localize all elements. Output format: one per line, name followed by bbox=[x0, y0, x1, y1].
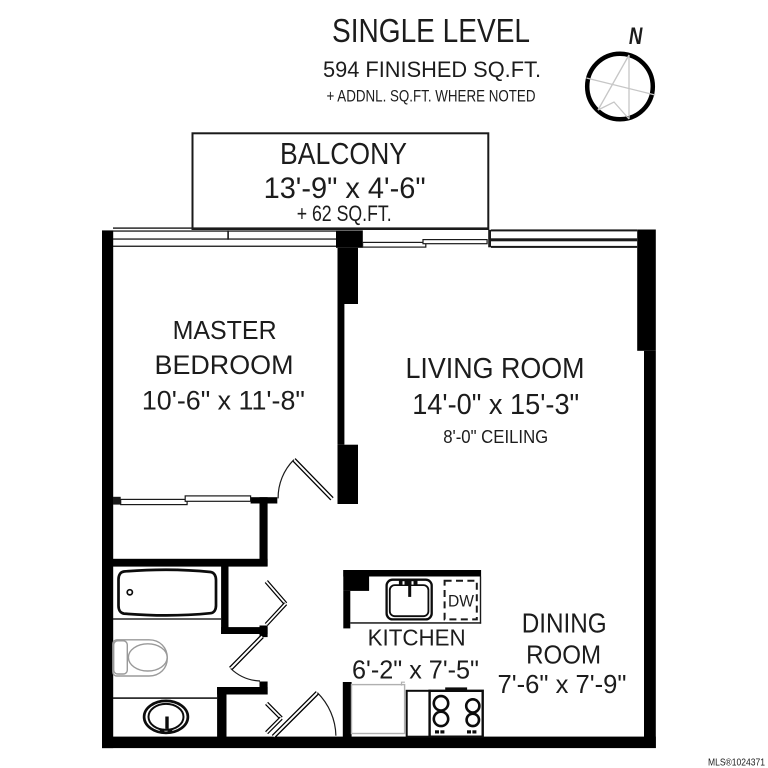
svg-text:DINING: DINING bbox=[522, 607, 607, 638]
svg-text:594 FINISHED SQ.FT.: 594 FINISHED SQ.FT. bbox=[323, 57, 541, 82]
svg-text:DW: DW bbox=[448, 593, 474, 611]
svg-text:SINGLE LEVEL: SINGLE LEVEL bbox=[332, 12, 530, 49]
svg-text:7'-6" x 7'-9": 7'-6" x 7'-9" bbox=[498, 669, 627, 699]
svg-text:MASTER: MASTER bbox=[173, 315, 277, 345]
svg-text:N: N bbox=[629, 23, 643, 50]
svg-text:BALCONY: BALCONY bbox=[280, 136, 407, 171]
svg-text:+ 62 SQ.FT.: + 62 SQ.FT. bbox=[297, 201, 392, 226]
svg-text:6'-2" x 7'-5": 6'-2" x 7'-5" bbox=[352, 656, 479, 684]
svg-text:8'-0" CEILING: 8'-0" CEILING bbox=[443, 426, 548, 447]
svg-text:MLS®1024371: MLS®1024371 bbox=[708, 758, 765, 768]
svg-text:BEDROOM: BEDROOM bbox=[155, 350, 294, 380]
svg-text:10'-6" x 11'-8": 10'-6" x 11'-8" bbox=[142, 385, 305, 415]
svg-text:LIVING ROOM: LIVING ROOM bbox=[406, 353, 585, 385]
svg-text:14'-0" x 15'-3": 14'-0" x 15'-3" bbox=[412, 389, 579, 421]
svg-text:+ ADDNL. SQ.FT. WHERE NOTED: + ADDNL. SQ.FT. WHERE NOTED bbox=[327, 87, 536, 106]
svg-text:ROOM: ROOM bbox=[526, 641, 601, 669]
svg-text:KITCHEN: KITCHEN bbox=[368, 625, 466, 651]
